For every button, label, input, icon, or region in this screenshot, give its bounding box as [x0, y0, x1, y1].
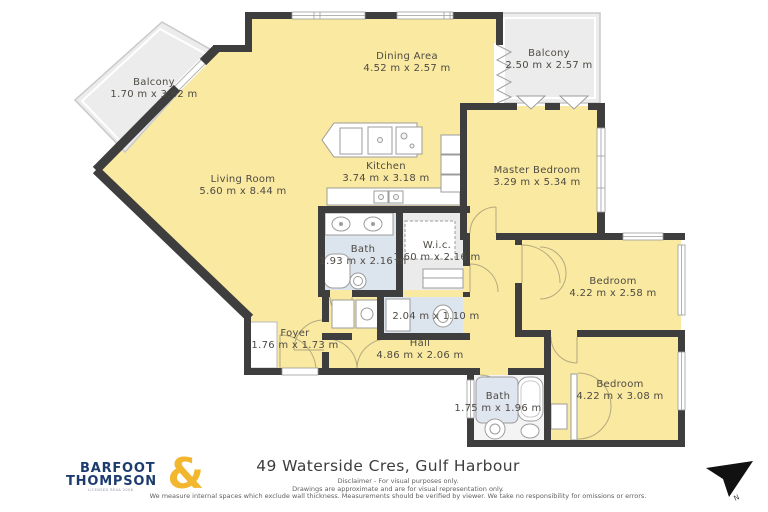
room-label-wc: 2.04 m x 1.10 m: [392, 311, 479, 323]
property-address: 49 Waterside Cres, Gulf Harbour: [256, 457, 519, 475]
logo-line2: THOMPSON: [66, 475, 176, 488]
room-label-balcony-right: Balcony 2.50 m x 2.57 m: [505, 48, 592, 72]
room-label-balcony-left: Balcony 1.70 m x 3.62 m: [110, 77, 197, 101]
room-label-living: Living Room 5.60 m x 8.44 m: [199, 174, 286, 198]
laundry-appliance: [332, 300, 354, 328]
dining-balcony-bifold: [494, 43, 504, 103]
room-label-bedroom-bottom: Bedroom 4.22 m x 3.08 m: [576, 379, 663, 403]
laundry-appliance: [356, 300, 378, 328]
room-label-bedroom-mid: Bedroom 4.22 m x 2.58 m: [569, 276, 656, 300]
room-label-wic: W.i.c. 1.60 m x 2.16 m: [393, 240, 480, 264]
toilet-icon: [521, 424, 539, 438]
disclaimer-text: Disclaimer - For visual purposes only. D…: [150, 478, 647, 501]
room-label-bath-main: Bath 1.75 m x 1.96 m: [454, 391, 541, 415]
room-label-dining: Dining Area 4.52 m x 2.57 m: [363, 51, 450, 75]
north-arrow-icon: [706, 461, 753, 497]
room-label-master-bedroom: Master Bedroom 3.29 m x 5.34 m: [493, 165, 580, 189]
room-label-foyer: Foyer 1.76 m x 1.73 m: [251, 328, 338, 352]
logo-ampersand: &: [167, 455, 204, 493]
disclaimer-line: We measure internal spaces which exclude…: [150, 493, 647, 501]
entry-door-gap: [282, 368, 318, 375]
room-label-kitchen: Kitchen 3.74 m x 3.18 m: [342, 161, 429, 185]
sink-icon: [485, 419, 505, 439]
floor-plan-page: Balcony 1.70 m x 3.62 m Dining Area 4.52…: [0, 0, 768, 512]
room-label-hall: Hall 4.86 m x 2.06 m: [376, 338, 463, 362]
barfoot-thompson-logo: BARFOOT THOMPSON & LICENSED REAA 2008: [66, 462, 176, 492]
kitchen-cabinet: [441, 135, 462, 154]
logo-tagline: LICENSED REAA 2008: [88, 488, 176, 492]
hall-closet: [551, 404, 567, 429]
